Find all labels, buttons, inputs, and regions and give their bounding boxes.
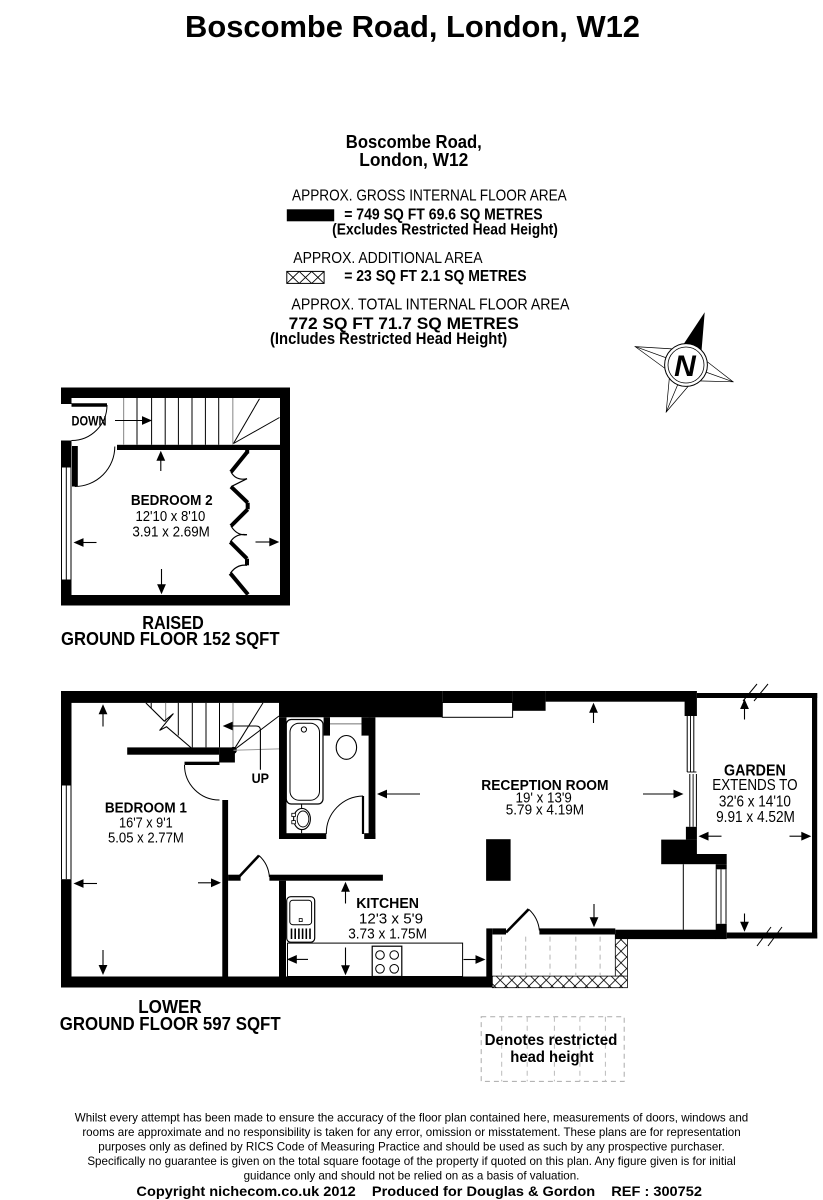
- svg-text:guidance only and should not b: guidance only and should not be relied o…: [244, 1169, 580, 1182]
- svg-text:EXTENDS TO: EXTENDS TO: [712, 777, 797, 794]
- svg-text:Specifically no guarantee is g: Specifically no guarantee is given on th…: [87, 1155, 735, 1168]
- svg-text:BEDROOM 2: BEDROOM 2: [131, 493, 213, 509]
- svg-text:London, W12: London, W12: [359, 150, 468, 170]
- svg-text:32'6 x 14'10: 32'6 x 14'10: [719, 794, 791, 811]
- svg-text:Boscombe Road,: Boscombe Road,: [346, 132, 482, 152]
- svg-text:APPROX. GROSS INTERNAL FLOOR A: APPROX. GROSS INTERNAL FLOOR AREA: [292, 188, 567, 205]
- svg-text:Boscombe Road, London, W12: Boscombe Road, London, W12: [185, 9, 640, 44]
- svg-text:Denotes restricted: Denotes restricted: [485, 1032, 618, 1049]
- svg-text:APPROX. TOTAL INTERNAL FLOOR A: APPROX. TOTAL INTERNAL FLOOR AREA: [291, 297, 570, 314]
- svg-text:Copyright nichecom.co.uk 2012: Copyright nichecom.co.uk 2012 Produced f…: [136, 1183, 702, 1199]
- svg-text:head height: head height: [510, 1049, 593, 1066]
- svg-text:16'7 x 9'1: 16'7 x 9'1: [119, 816, 173, 832]
- svg-text:5.05 x 2.77M: 5.05 x 2.77M: [108, 831, 184, 847]
- svg-text:Whilst every attempt has been: Whilst every attempt has been made to en…: [75, 1112, 748, 1125]
- svg-text:9.91 x 4.52M: 9.91 x 4.52M: [716, 809, 795, 826]
- svg-text:3.91 x 2.69M: 3.91 x 2.69M: [132, 525, 209, 541]
- svg-text:APPROX. ADDITIONAL AREA: APPROX. ADDITIONAL AREA: [293, 250, 483, 267]
- svg-text:(Excludes Restricted Head Heig: (Excludes Restricted Head Height): [332, 221, 558, 238]
- svg-text:5.79 x 4.19M: 5.79 x 4.19M: [506, 803, 584, 819]
- svg-text:N: N: [674, 350, 697, 383]
- svg-text:GROUND FLOOR 597 SQFT: GROUND FLOOR 597 SQFT: [60, 1014, 281, 1034]
- svg-text:= 23 SQ FT 2.1 SQ METRES: = 23 SQ FT 2.1 SQ METRES: [344, 268, 526, 285]
- svg-text:purposes only as defined by RI: purposes only as defined by RICS Code of…: [98, 1140, 724, 1153]
- svg-text:rooms are approximate and no r: rooms are approximate and no responsibil…: [82, 1126, 740, 1139]
- svg-text:12'3 x 5'9: 12'3 x 5'9: [359, 912, 423, 928]
- svg-text:GROUND FLOOR 152 SQFT: GROUND FLOOR 152 SQFT: [61, 629, 280, 649]
- svg-text:BEDROOM 1: BEDROOM 1: [105, 801, 187, 817]
- svg-text:UP: UP: [252, 770, 269, 786]
- svg-text:3.73 x 1.75M: 3.73 x 1.75M: [348, 927, 427, 943]
- svg-text:12'10 x 8'10: 12'10 x 8'10: [135, 509, 205, 525]
- svg-text:(Includes Restricted Head Heig: (Includes Restricted Head Height): [270, 330, 507, 348]
- svg-text:KITCHEN: KITCHEN: [356, 896, 419, 912]
- svg-text:DOWN: DOWN: [72, 414, 107, 429]
